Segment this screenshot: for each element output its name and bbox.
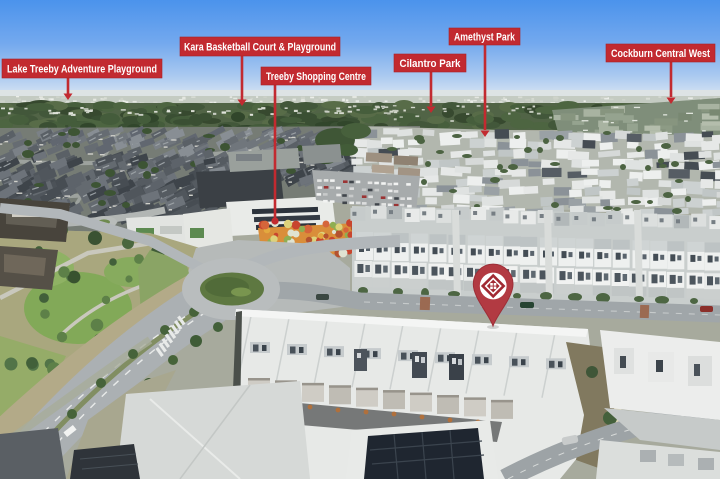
svg-text:Cilantro Park: Cilantro Park [400,58,462,70]
svg-text:Treeby Shopping Centre: Treeby Shopping Centre [266,71,366,83]
svg-text:Cockburn Central West: Cockburn Central West [611,48,710,60]
svg-text:Kara Basketball Court & Playgr: Kara Basketball Court & Playground [184,41,336,53]
svg-text:Amethyst Park: Amethyst Park [454,31,516,43]
svg-text:Lake Treeby Adventure Playgrou: Lake Treeby Adventure Playground [7,63,157,75]
